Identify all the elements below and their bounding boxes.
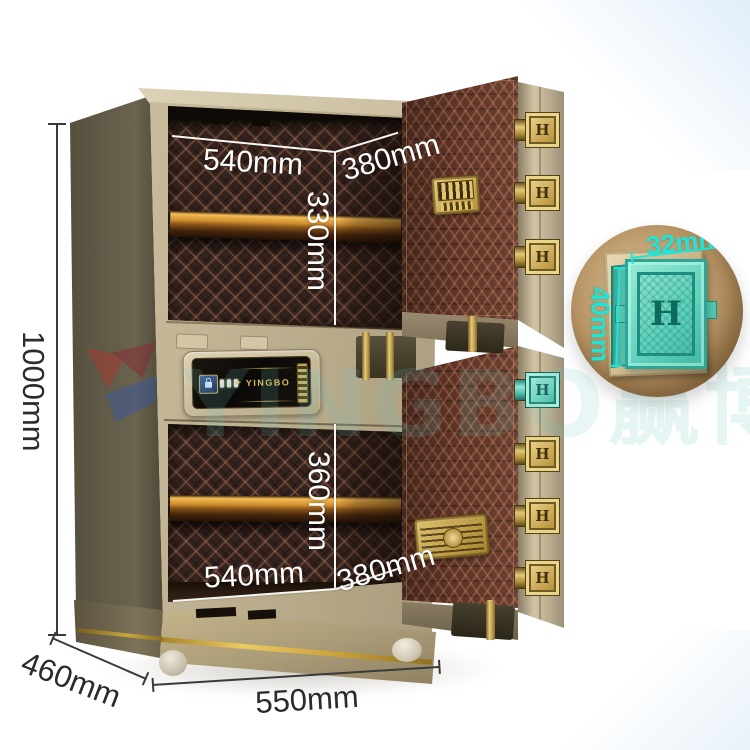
- lock-mechanism-slats: [437, 180, 474, 201]
- bolt-plate: H: [525, 175, 560, 211]
- dim-height-cap-bottom: [48, 634, 66, 636]
- bolt-width-label: 32mm: [628, 225, 741, 264]
- dim-line-top-height: [334, 152, 336, 325]
- dim-base-width-label: 550mm: [246, 678, 368, 721]
- dim-top-height-label: 330mm: [300, 186, 334, 296]
- upper-door-lock-mechanism: [431, 174, 482, 215]
- product-image-safe: ✦ YINGBO H H H: [0, 0, 750, 750]
- upper-hinge-slot: [252, 118, 270, 127]
- dim-bottom-height-label: 360mm: [301, 446, 335, 556]
- dim-line-height-outer: [56, 124, 58, 636]
- foot-right: [392, 638, 422, 662]
- dim-top-width-label: 540mm: [192, 143, 314, 183]
- bolt-letter: H: [535, 186, 549, 201]
- bolt-height-label: 40mm: [585, 270, 616, 380]
- dim-bottom-width-label: 540mm: [193, 556, 315, 596]
- lower-door-hardware: [451, 602, 515, 640]
- bolt-plate: H: [525, 239, 560, 275]
- upper-side-wall-shade: [336, 104, 402, 330]
- sill-slot: [248, 609, 276, 619]
- door-bolt: H: [514, 498, 558, 532]
- hinge-pin: [486, 600, 495, 640]
- door-bolt: H: [514, 175, 558, 209]
- dim-height-cap-top: [48, 123, 66, 125]
- dim-base-depth-label: 460mm: [11, 643, 130, 717]
- door-bolt: H: [514, 112, 558, 146]
- bolt-detail-inner: H: [637, 272, 695, 356]
- bolt-letter: H: [535, 250, 549, 265]
- bolt-letter: H: [535, 571, 549, 586]
- watermark-logo: [86, 342, 160, 426]
- lock-mechanism-teeth: [441, 201, 473, 211]
- door-bolt: H: [514, 560, 558, 594]
- bolt-detail-letter: H: [650, 294, 682, 334]
- foot-left: [159, 650, 187, 676]
- bolt-letter: H: [535, 123, 549, 138]
- watermark-latin: YINGBO: [182, 351, 608, 458]
- bolt-plate: H: [525, 560, 560, 596]
- watermark-logo-shape: [106, 376, 156, 422]
- bolt-detail-face: H: [625, 259, 707, 369]
- bolt-detail-circle: H 32mm 40mm: [571, 225, 743, 397]
- bolt-plate: H: [525, 112, 560, 148]
- door-bolt: H: [514, 239, 558, 273]
- bolt-letter: H: [535, 509, 549, 524]
- corner-tint-bottom-right: [550, 630, 750, 750]
- upper-hinge-slot: [202, 115, 230, 125]
- bolt-plate: H: [525, 498, 560, 534]
- dim-height-label: 1000mm: [15, 331, 51, 451]
